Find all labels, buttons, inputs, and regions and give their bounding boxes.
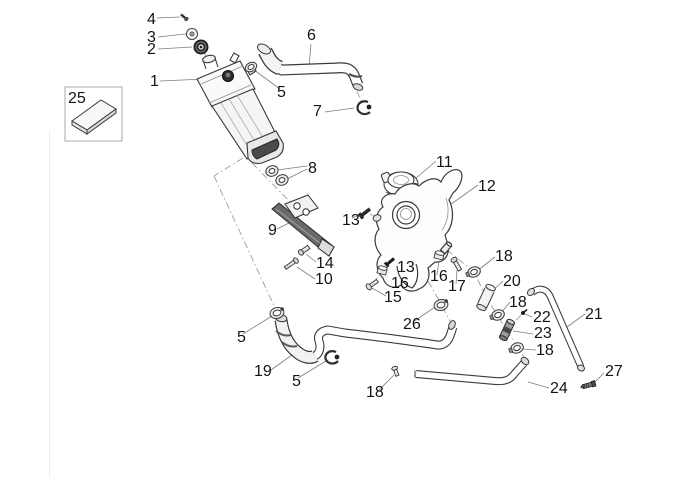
part-screw-27 xyxy=(580,381,596,390)
part-grommets-8 xyxy=(264,164,289,187)
callout-13a: 13 xyxy=(342,212,360,229)
callout-10: 10 xyxy=(315,271,333,288)
callout-3: 3 xyxy=(147,29,156,46)
callout-19: 19 xyxy=(254,363,272,380)
callout-20: 20 xyxy=(503,273,521,290)
callout-12: 12 xyxy=(478,178,496,195)
part-washer-3 xyxy=(187,29,198,40)
callout-18d: 18 xyxy=(366,384,384,401)
callout-23: 23 xyxy=(534,325,552,342)
part-screw-17 xyxy=(450,256,463,271)
part-clamp-18a xyxy=(465,265,482,279)
callout-16b: 16 xyxy=(430,268,448,285)
callout-26: 26 xyxy=(403,316,421,333)
parts-diagram: 1 2 3 4 5 5 5 6 7 8 9 10 11 12 13 13 14 … xyxy=(0,0,700,478)
callout-5a: 5 xyxy=(277,84,286,101)
callout-21: 21 xyxy=(585,306,603,323)
callout-18c: 18 xyxy=(536,342,554,359)
callout-11: 11 xyxy=(436,154,453,171)
part-screw-14 xyxy=(297,245,310,257)
callout-6: 6 xyxy=(307,27,316,44)
callout-5b: 5 xyxy=(237,329,246,346)
callout-7: 7 xyxy=(313,103,322,120)
callout-24: 24 xyxy=(550,380,568,397)
part-clamp-5c xyxy=(325,351,339,363)
part-screw-15 xyxy=(365,278,379,291)
part-pin-13a xyxy=(358,206,372,219)
callout-16a: 16 xyxy=(391,275,409,292)
part-clamp-18c xyxy=(508,341,525,355)
part-pipe-20 xyxy=(476,283,496,312)
callout-18b: 18 xyxy=(509,294,527,311)
part-bracket-9 xyxy=(272,195,334,256)
callout-22: 22 xyxy=(533,309,551,326)
part-hose-24 xyxy=(415,356,530,381)
callout-18a: 18 xyxy=(495,248,513,265)
part-grommet-2 xyxy=(194,40,209,55)
callout-5c: 5 xyxy=(292,373,301,390)
part-hose-6 xyxy=(256,42,364,92)
part-clip-7 xyxy=(357,101,371,114)
part-screw-18d xyxy=(391,366,400,377)
part-hose-19 xyxy=(274,313,456,357)
callout-17: 17 xyxy=(448,278,466,295)
part-clamp-26 xyxy=(433,298,450,312)
callout-1: 1 xyxy=(150,73,159,90)
callout-4: 4 xyxy=(147,11,156,28)
callout-14: 14 xyxy=(316,255,334,272)
callout-13b: 13 xyxy=(397,259,415,276)
callout-25: 25 xyxy=(68,90,86,107)
part-screw-10 xyxy=(284,257,300,271)
callout-8: 8 xyxy=(308,160,317,177)
part-screw-4 xyxy=(179,13,189,22)
callout-27: 27 xyxy=(605,363,623,380)
callout-9: 9 xyxy=(268,222,277,239)
